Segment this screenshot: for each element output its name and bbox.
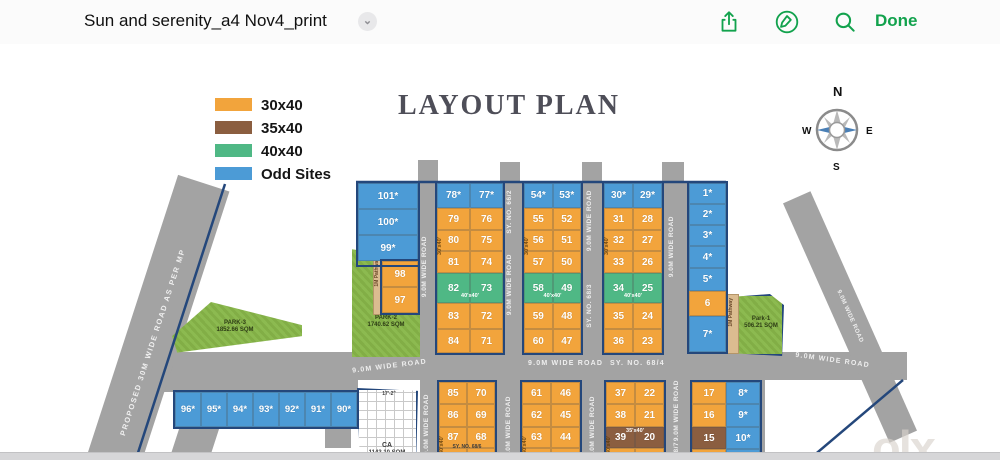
plot-60: 60 [524,329,553,353]
plot-59: 59 [524,303,553,329]
dim-30x40: 30'x40' [437,237,443,255]
legend-swatch [215,167,252,180]
plot-4*: 4* [689,246,726,268]
dim-30x40: 30'x40' [604,237,610,255]
park-2-label: PARK-2 [360,315,412,322]
sy-68-6-label: SY. NO. 68/6 [437,444,497,450]
plot-51: 51 [553,230,582,251]
plot-92*: 92* [279,392,305,427]
legend-item: Odd Sites [215,166,355,181]
road-label-wide: 9.0M WIDE ROAD [505,396,517,457]
layout-plan-document: LAYOUT PLAN 30x4035x4040x40Odd Sites PRO… [0,44,1000,452]
plot-24: 24 [633,303,662,329]
plot-10*: 10* [726,427,760,449]
plot-86: 86 [439,404,467,427]
plot-91*: 91* [305,392,331,427]
road-surface [582,162,602,184]
plot-83: 83 [437,303,470,329]
plot-8*: 8* [726,382,760,404]
park-1-label: Park-1 [739,316,783,323]
screen: Sun and serenity_a4 Nov4_print ⌄ Done LA… [0,0,1000,460]
road-label-wide: 9.0M WIDE ROAD [668,216,680,277]
plot-77*: 77* [470,183,503,208]
plot-101*: 101* [358,183,418,209]
legend-label: 35x40 [261,120,303,137]
road-label-wide: 9.0M WIDE ROAD [589,396,601,457]
legend-label: 40x40 [261,143,303,160]
road-label-wide: 9.0M WIDE ROAD [421,236,433,297]
legend-swatch [215,144,252,157]
dim-40x40: 40'x40' [524,293,581,299]
dim-40x40: 40'x40' [437,293,503,299]
document-title[interactable]: Sun and serenity_a4 Nov4_print [84,11,327,31]
plot-85: 85 [439,382,467,404]
plot-78*: 78* [437,183,470,208]
plot-69: 69 [467,404,495,427]
plot-95*: 95* [201,392,227,427]
compass-w: W [802,126,812,137]
legend-swatch [215,121,252,134]
legend-label: 30x40 [261,97,303,114]
plot-35: 35 [604,303,633,329]
road-label-sy683: SY. NO. 68/3 [586,284,598,328]
dim-40x40: 40'x40' [604,293,662,299]
dim-35x40: 35'x40' [606,428,664,434]
plot-98: 98 [382,261,418,287]
plot-99*: 99* [358,235,418,261]
road-surface [325,424,351,448]
road-label-wide: 9.0M WIDE ROAD [586,190,598,251]
toolbar: Sun and serenity_a4 Nov4_print ⌄ Done [0,0,1000,45]
plot-70: 70 [467,382,495,404]
right-road-label: 9.0M WIDE ROAD [836,290,865,345]
plot-47: 47 [553,329,582,353]
legend-item: 35x40 [215,120,355,135]
plot-54*: 54* [524,183,553,208]
pathway-label: 1M Pathway [374,258,380,287]
plot-29*: 29* [633,183,662,208]
plot-15: 15 [692,427,726,449]
plot-28: 28 [633,208,662,230]
plot-23: 23 [633,329,662,353]
plot-76: 76 [470,208,503,230]
plot-48: 48 [553,303,582,329]
plot-55: 55 [524,208,553,230]
plot-21: 21 [635,404,664,427]
road-label-wide: 9.0M WIDE ROAD [673,380,685,441]
plot-50: 50 [553,251,582,273]
legend-item: 40x40 [215,143,355,158]
search-icon[interactable] [832,9,858,35]
plot-52: 52 [553,208,582,230]
plot-71: 71 [470,329,503,353]
chevron-down-icon[interactable]: ⌄ [358,12,377,31]
plot-9*: 9* [726,404,760,427]
plot-5*: 5* [689,268,726,291]
plot-79: 79 [437,208,470,230]
plot-26: 26 [633,251,662,273]
right-diagonal-road: 9.0M WIDE ROAD [783,191,917,443]
road-label-wide: 9.0M WIDE ROAD [528,360,603,367]
ca-dim-top: 17'-2" [372,391,406,397]
road-surface [662,162,684,184]
road-surface [500,162,520,184]
plot-3*: 3* [689,225,726,246]
plot-53*: 53* [553,183,582,208]
park-3-label: PARK-3 [200,320,270,327]
legend-swatch [215,98,252,111]
plot-36: 36 [604,329,633,353]
compass-e: E [866,126,873,137]
pathway-label: 1M Pathway [728,298,734,327]
plot-46: 46 [551,382,580,404]
plot-31: 31 [604,208,633,230]
compass-n: N [833,84,842,99]
plot-61: 61 [522,382,551,404]
compass-icon: N S W E [800,84,874,172]
road-label-sy684: SY. NO. 68/4 [610,360,665,367]
plot-94*: 94* [227,392,253,427]
plot-30*: 30* [604,183,633,208]
plan-title: LAYOUT PLAN [398,90,620,122]
dim-30x40: 30'x40' [524,237,530,255]
road-label-wide: 9.0M WIDE ROAD [506,254,518,315]
markup-icon[interactable] [774,9,800,35]
plot-16: 16 [692,404,726,427]
plot-62: 62 [522,404,551,427]
compass-s: S [833,162,840,172]
plot-97: 97 [382,287,418,313]
road-label-sy662: SY. NO. 66/2 [506,190,518,234]
plot-2*: 2* [689,204,726,225]
plot-1*: 1* [689,183,726,204]
park-1-area: 506.21 SQM [739,323,783,330]
share-icon[interactable] [716,9,742,35]
plot-44: 44 [551,427,580,448]
plot-45: 45 [551,404,580,427]
park-3-area: 1852.66 SQM [200,327,270,334]
legend-label: Odd Sites [261,166,331,183]
legend-item: 30x40 [215,97,355,112]
plot-100*: 100* [358,209,418,235]
plot-90*: 90* [331,392,357,427]
plot-17: 17 [692,382,726,404]
done-button[interactable]: Done [875,11,918,31]
plot-93*: 93* [253,392,279,427]
road-surface [160,374,358,392]
page-edge [0,452,1000,460]
plot-96*: 96* [175,392,201,427]
plot-22: 22 [635,382,664,404]
plot-37: 37 [606,382,635,404]
road-surface [418,160,438,184]
plot-38: 38 [606,404,635,427]
plot-84: 84 [437,329,470,353]
plot-7*: 7* [689,316,726,352]
plot-27: 27 [633,230,662,251]
park-2-area: 1740.62 SQM [360,322,412,329]
plot-6: 6 [689,291,726,316]
plot-74: 74 [470,251,503,273]
ca-label: CA [362,442,412,449]
plot-72: 72 [470,303,503,329]
road-label-wide: 9.0M WIDE ROAD [423,394,435,455]
plot-75: 75 [470,230,503,251]
